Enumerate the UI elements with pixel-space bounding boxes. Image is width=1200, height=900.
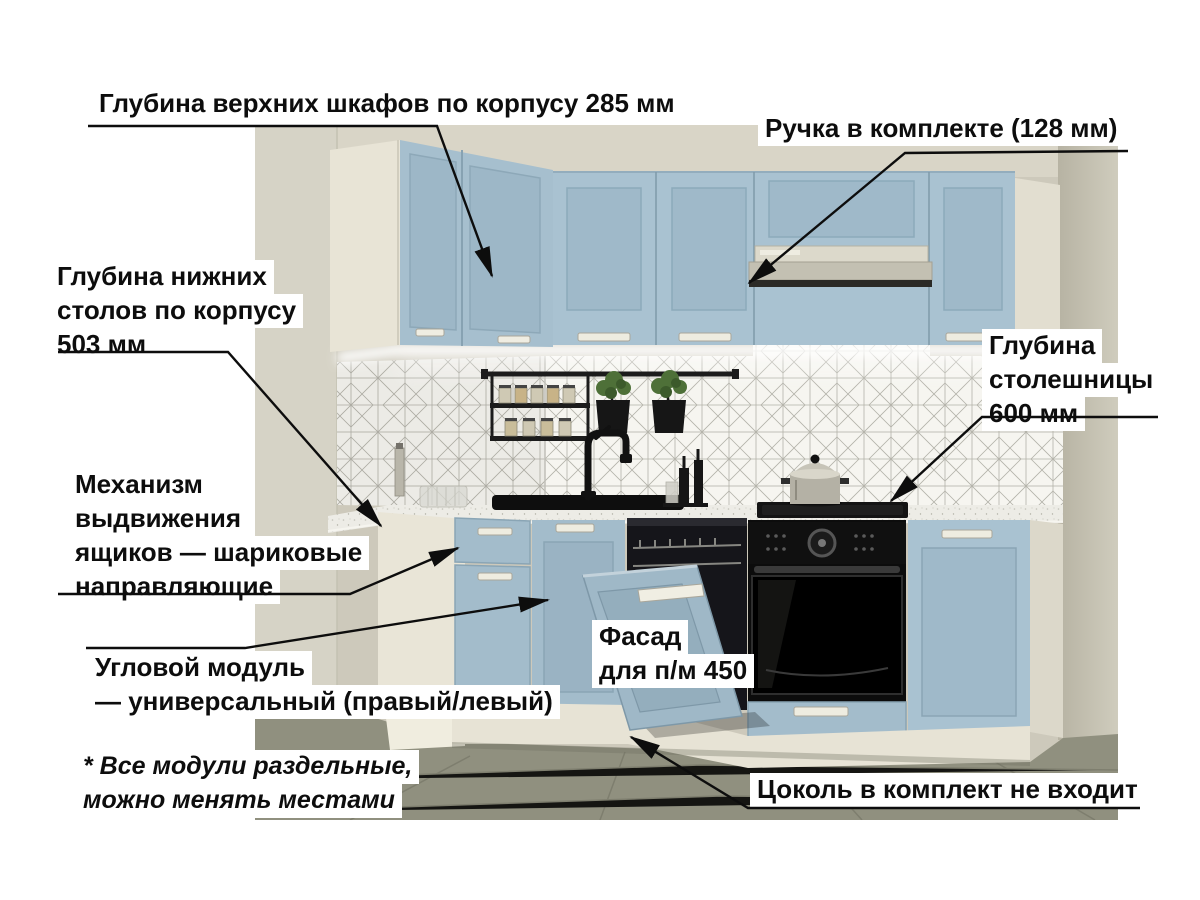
annotation-plinth-note: Цоколь в комплект не входит — [750, 773, 1145, 807]
annotation-text: Глубина — [982, 329, 1102, 363]
annotation-text: Фасад — [592, 620, 688, 654]
annotation-modules-note: * Все модули раздельные, можно менять ме… — [76, 750, 419, 818]
upper-cabinets — [330, 140, 1060, 352]
right-base-cabinet — [908, 520, 1030, 732]
annotation-text: — универсальный (правый/левый) — [88, 685, 560, 719]
annotation-drawer-mechanism: Механизм выдвижения ящиков — шариковые н… — [68, 468, 369, 604]
annotation-text: Угловой модуль — [88, 651, 312, 685]
annotation-upper-cabinet-depth: Глубина верхних шкафов по корпусу 285 мм — [92, 87, 682, 121]
annotation-text: для п/м 450 — [592, 654, 754, 688]
annotation-text: * Все модули раздельные, — [76, 750, 419, 784]
annotation-text: направляющие — [68, 570, 280, 604]
annotation-text: выдвижения — [68, 502, 248, 536]
annotation-text: 600 мм — [982, 397, 1085, 431]
annotation-text: 503 мм — [50, 328, 153, 362]
annotation-text: Цоколь в комплект не входит — [750, 773, 1145, 807]
annotation-text: Глубина верхних шкафов по корпусу 285 мм — [92, 87, 682, 121]
annotation-base-cabinet-depth: Глубина нижних столов по корпусу 503 мм — [50, 260, 303, 362]
annotation-handle-included: Ручка в комплекте (128 мм) — [758, 112, 1124, 146]
under-cabinet-light — [337, 344, 1062, 374]
annotation-text: ящиков — шариковые — [68, 536, 369, 570]
annotation-text: столешницы — [982, 363, 1160, 397]
annotation-countertop-depth: Глубина столешницы 600 мм — [982, 329, 1160, 431]
annotation-text: Глубина нижних — [50, 260, 274, 294]
annotation-text: можно менять местами — [76, 784, 402, 818]
annotated-kitchen-diagram: Глубина верхних шкафов по корпусу 285 мм… — [0, 0, 1200, 900]
annotation-text: столов по корпусу — [50, 294, 303, 328]
annotation-text: Механизм — [68, 468, 210, 502]
annotation-dishwasher-facade: Фасад для п/м 450 — [592, 620, 754, 688]
range-hood — [749, 246, 932, 287]
annotation-corner-module: Угловой модуль — универсальный (правый/л… — [88, 651, 560, 719]
annotation-text: Ручка в комплекте (128 мм) — [758, 112, 1124, 146]
